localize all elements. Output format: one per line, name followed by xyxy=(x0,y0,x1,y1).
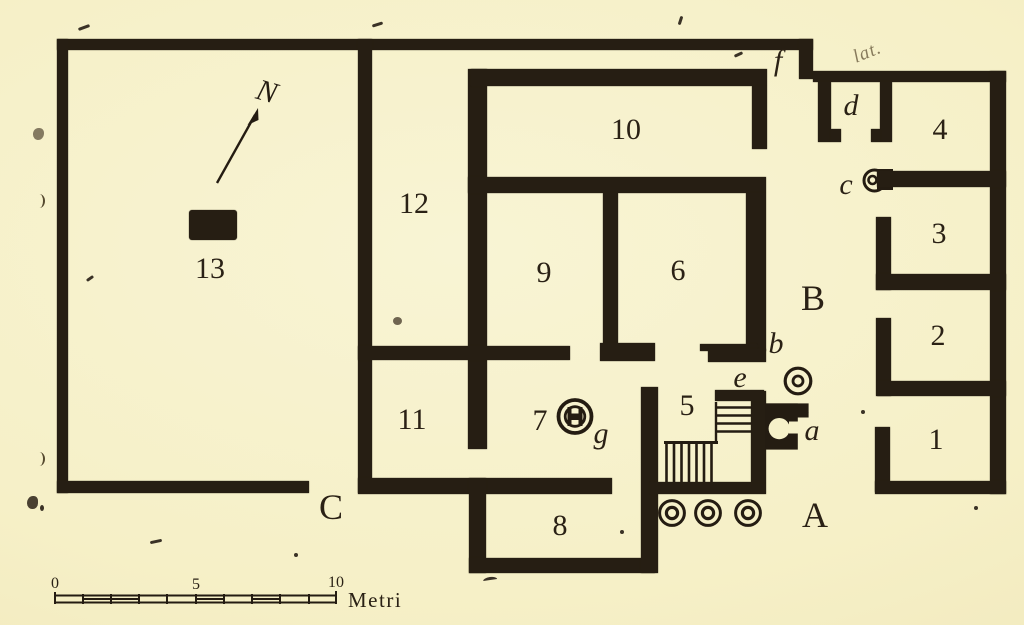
svg-text:N: N xyxy=(252,73,283,111)
svg-text:Metri: Metri xyxy=(348,588,402,612)
svg-text:0: 0 xyxy=(51,575,59,592)
svg-text:10: 10 xyxy=(328,574,344,591)
svg-text:5: 5 xyxy=(192,576,200,593)
